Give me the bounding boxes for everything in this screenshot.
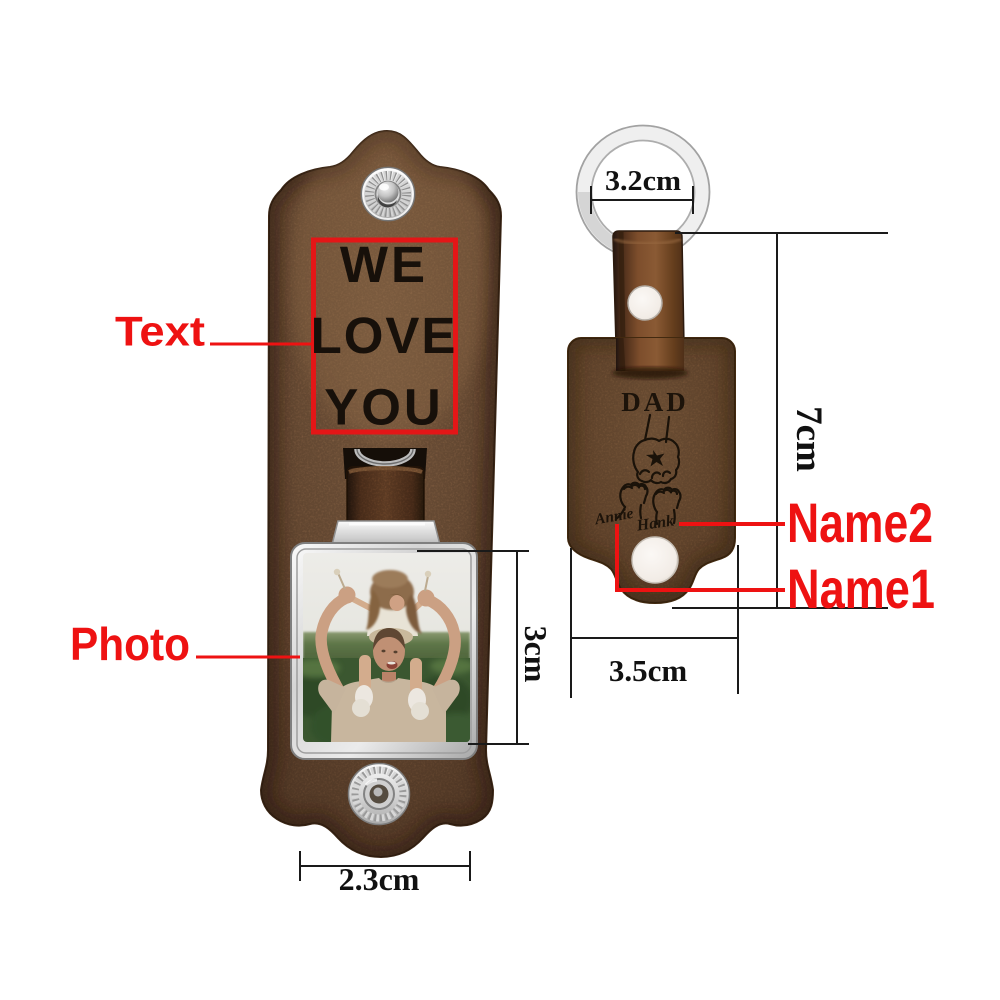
svg-text:YOU: YOU	[324, 379, 444, 436]
svg-text:LOVE: LOVE	[311, 307, 458, 364]
svg-text:3cm: 3cm	[518, 626, 554, 683]
svg-text:Photo: Photo	[70, 618, 190, 670]
svg-text:3.5cm: 3.5cm	[609, 653, 688, 688]
svg-text:Name2: Name2	[787, 491, 933, 554]
svg-text:7cm: 7cm	[788, 406, 829, 472]
svg-text:Text: Text	[115, 308, 205, 355]
svg-text:3.2cm: 3.2cm	[605, 165, 681, 197]
svg-text:Name1: Name1	[787, 557, 935, 620]
svg-text:2.3cm: 2.3cm	[339, 861, 420, 897]
svg-text:WE: WE	[340, 236, 428, 293]
svg-text:DAD: DAD	[621, 387, 689, 417]
